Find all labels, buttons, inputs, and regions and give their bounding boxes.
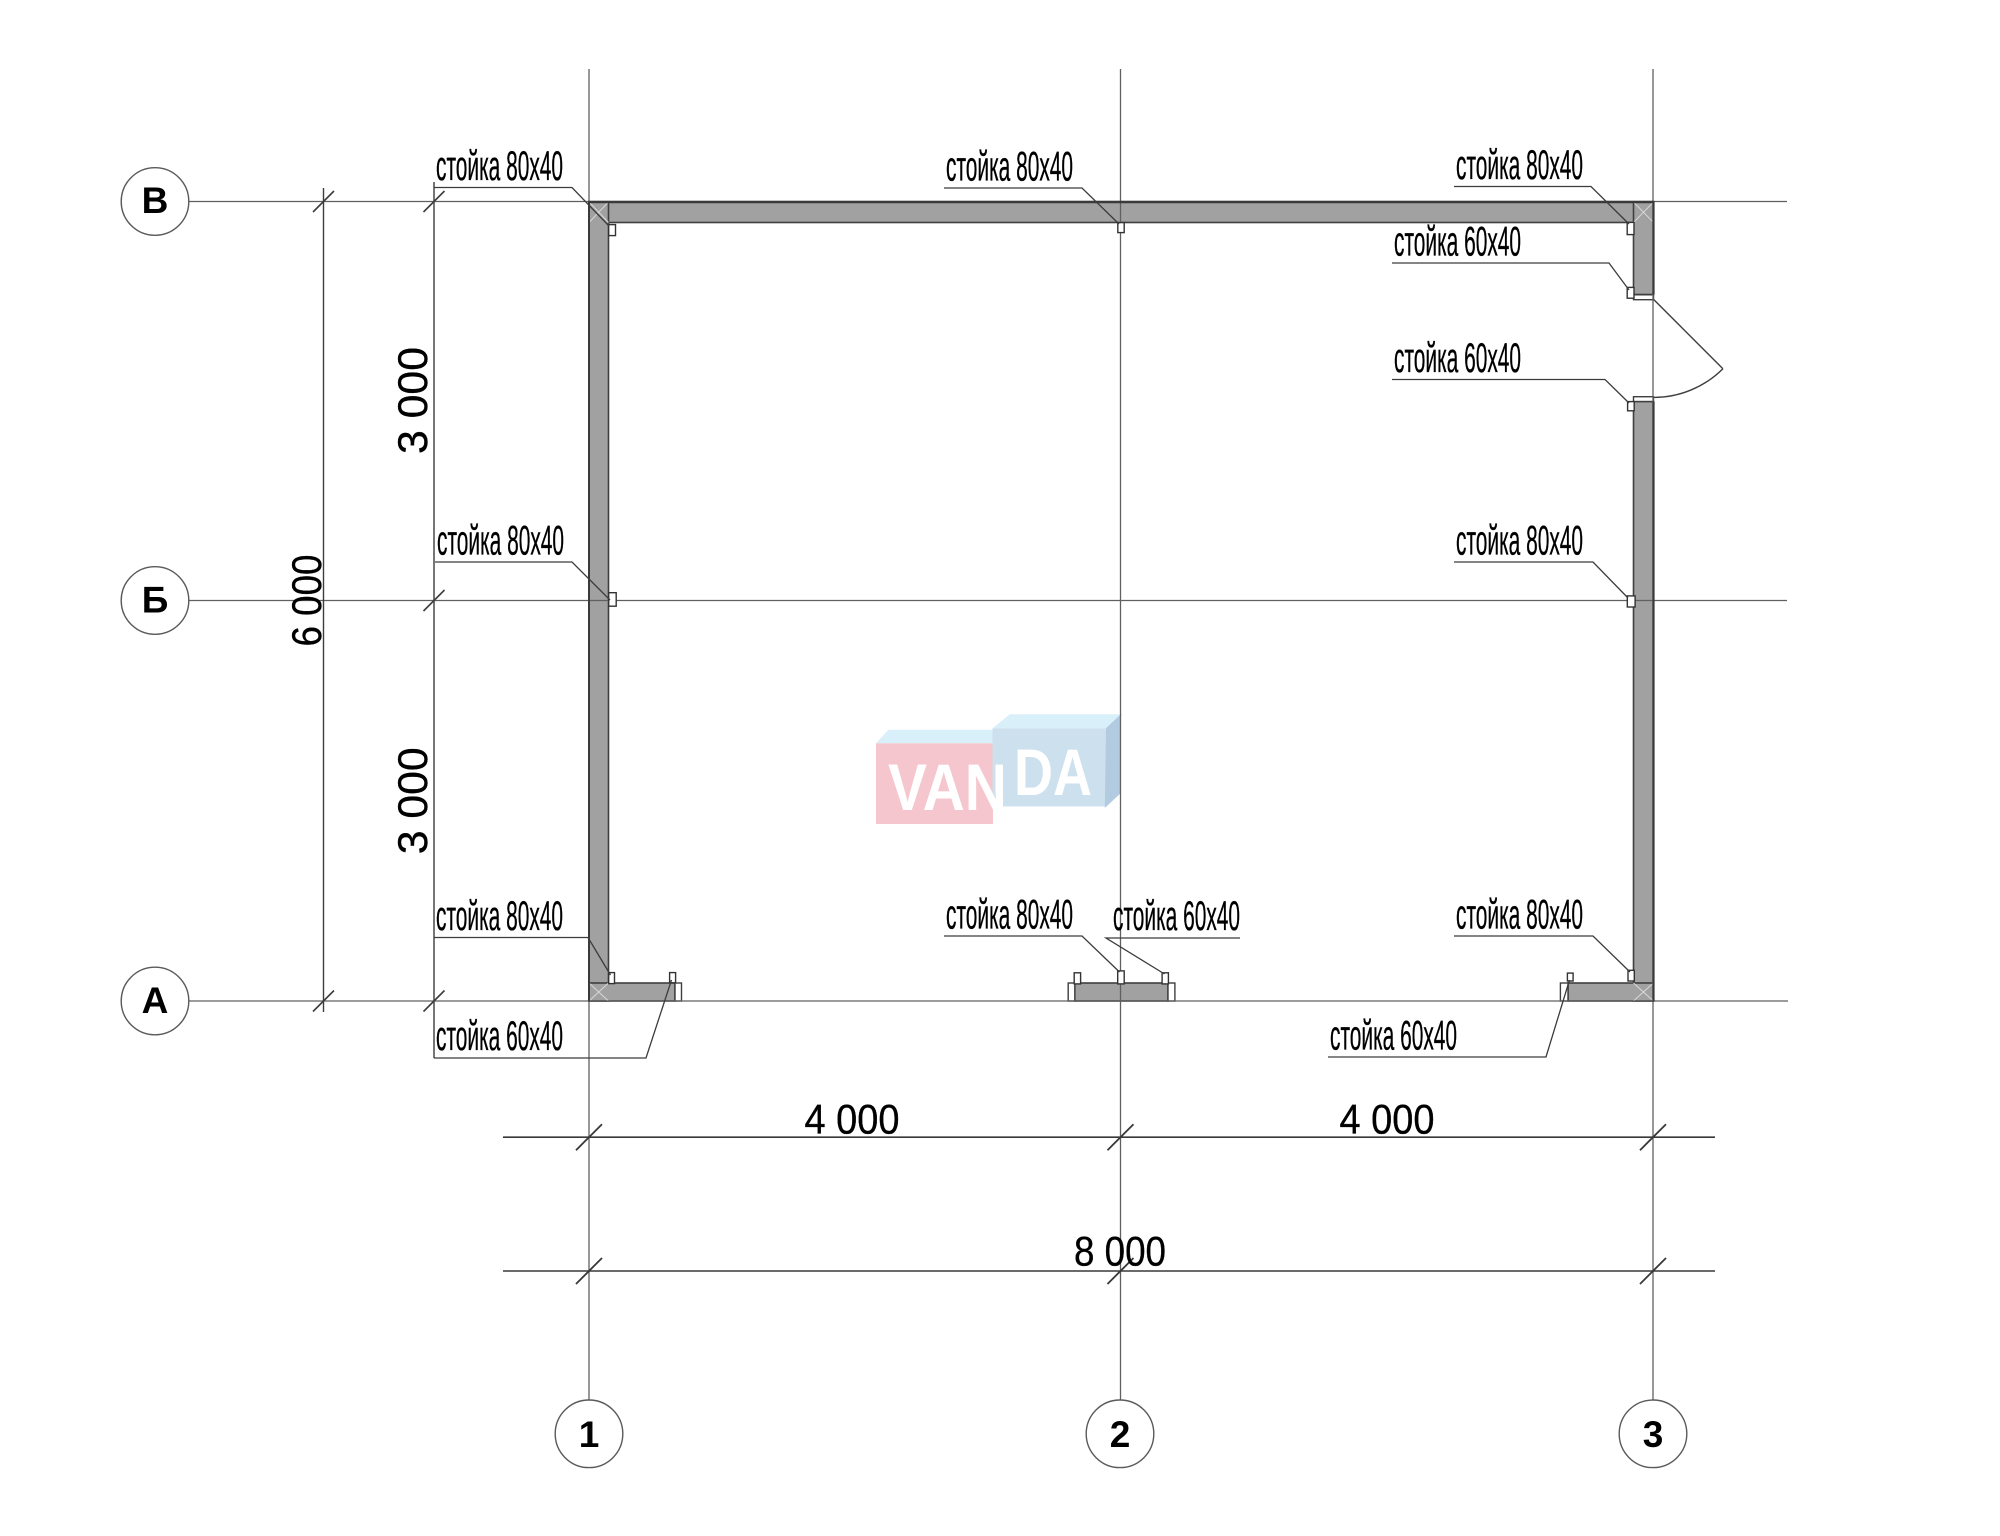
svg-text:6 000: 6 000 — [283, 555, 330, 647]
svg-text:стойка 80х40: стойка 80х40 — [1456, 517, 1583, 564]
svg-text:стойка 60х40: стойка 60х40 — [1394, 218, 1521, 265]
svg-text:стойка 60х40: стойка 60х40 — [436, 1012, 563, 1059]
svg-text:3 000: 3 000 — [389, 347, 436, 454]
svg-text:В: В — [142, 180, 169, 221]
svg-text:стойка 80х40: стойка 80х40 — [436, 142, 563, 189]
svg-text:стойка 80х40: стойка 80х40 — [946, 891, 1073, 938]
svg-text:стойка 60х40: стойка 60х40 — [1330, 1012, 1457, 1059]
svg-text:стойка 80х40: стойка 80х40 — [1456, 141, 1583, 188]
svg-text:стойка 80х40: стойка 80х40 — [437, 517, 564, 564]
svg-text:3: 3 — [1643, 1414, 1664, 1455]
svg-text:стойка 60х40: стойка 60х40 — [1113, 892, 1240, 939]
svg-text:2: 2 — [1110, 1414, 1131, 1455]
svg-text:стойка 60х40: стойка 60х40 — [1394, 334, 1521, 381]
svg-text:DA: DA — [1014, 735, 1092, 809]
svg-text:стойка 80х40: стойка 80х40 — [1456, 891, 1583, 938]
svg-text:стойка 80х40: стойка 80х40 — [436, 892, 563, 939]
svg-text:VAN: VAN — [888, 750, 1007, 824]
svg-text:А: А — [142, 980, 169, 1021]
svg-text:3 000: 3 000 — [389, 747, 436, 854]
svg-text:4 000: 4 000 — [1340, 1096, 1435, 1143]
svg-text:стойка 80х40: стойка 80х40 — [946, 143, 1073, 190]
svg-text:8 000: 8 000 — [1074, 1228, 1166, 1275]
svg-text:Б: Б — [142, 580, 169, 621]
svg-text:1: 1 — [579, 1414, 600, 1455]
svg-text:4 000: 4 000 — [805, 1096, 900, 1143]
